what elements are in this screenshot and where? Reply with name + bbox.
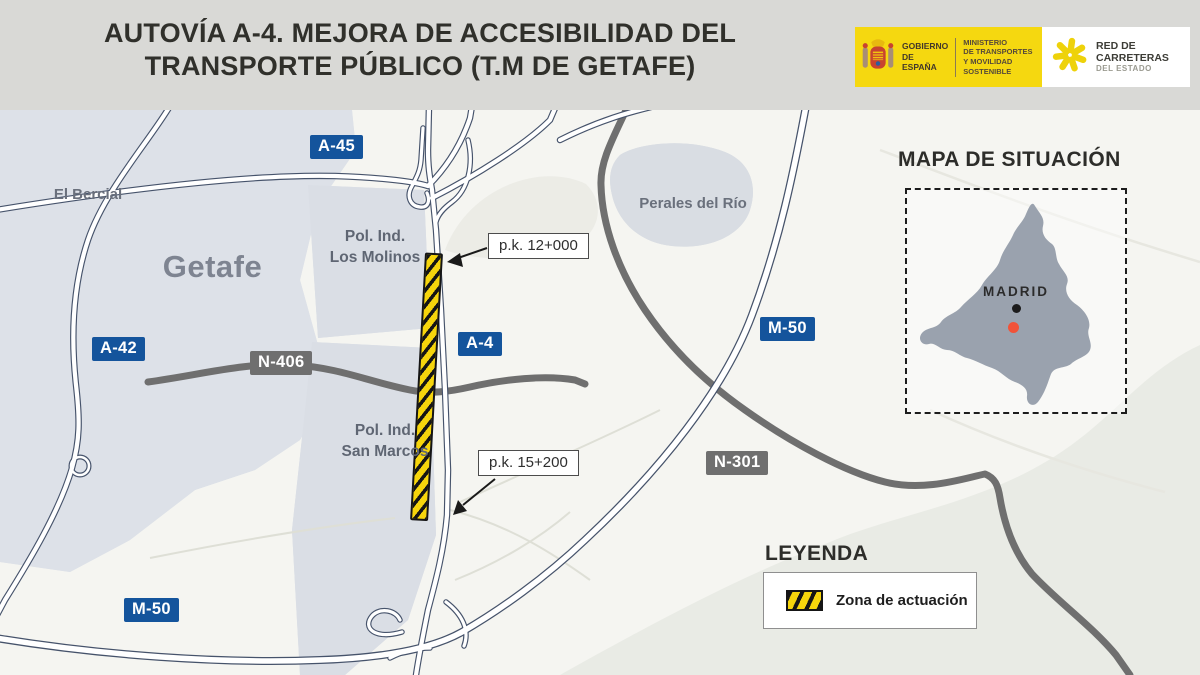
government-logo-text: GOBIERNO DE ESPAÑA bbox=[902, 41, 948, 73]
san-marcos-line2: San Marcos bbox=[325, 442, 445, 463]
page-title-line2: TRANSPORTE PÚBLICO (T.M DE GETAFE) bbox=[60, 50, 780, 83]
network-line3: DEL ESTADO bbox=[1096, 64, 1169, 73]
road-network-logo: RED DE CARRETERAS DEL ESTADO bbox=[1042, 27, 1190, 87]
road-badge-a42: A-42 bbox=[92, 337, 145, 361]
road-network-logo-text: RED DE CARRETERAS DEL ESTADO bbox=[1096, 41, 1169, 73]
infographic-page: AUTOVÍA A-4. MEJORA DE ACCESIBILIDAD DEL… bbox=[0, 0, 1200, 675]
network-line2: CARRETERAS bbox=[1096, 53, 1169, 65]
san-marcos-line1: Pol. Ind. bbox=[325, 421, 445, 442]
los-molinos-line2: Los Molinos bbox=[315, 248, 435, 269]
network-line1: RED DE bbox=[1096, 41, 1169, 53]
madrid-city-label: MADRID bbox=[907, 284, 1125, 299]
los-molinos-line1: Pol. Ind. bbox=[315, 227, 435, 248]
legend-item-label: Zona de actuación bbox=[836, 592, 968, 609]
gov-line2: DE ESPAÑA bbox=[902, 52, 948, 73]
government-logo: GOBIERNO DE ESPAÑA MINISTERIO DE TRANSPO… bbox=[855, 27, 1042, 87]
gov-line1: GOBIERNO bbox=[902, 41, 948, 52]
spain-coat-of-arms-icon bbox=[861, 35, 895, 80]
place-label-perales: Perales del Río bbox=[628, 194, 758, 214]
madrid-region-shape bbox=[907, 190, 1124, 411]
yellow-star-icon bbox=[1050, 35, 1090, 80]
callout-pk-15200: p.k. 15+200 bbox=[478, 450, 579, 476]
page-title: AUTOVÍA A-4. MEJORA DE ACCESIBILIDAD DEL… bbox=[60, 17, 780, 83]
ministry-line2: DE TRANSPORTES bbox=[963, 47, 1036, 57]
situation-map-title: MAPA DE SITUACIÓN bbox=[898, 148, 1158, 172]
legend-title: LEYENDA bbox=[765, 542, 868, 566]
road-badge-a45: A-45 bbox=[310, 135, 363, 159]
ministry-logo-text: MINISTERIO DE TRANSPORTES Y MOVILIDAD SO… bbox=[955, 38, 1036, 77]
project-map: A-45 A-42 A-4 M-50 M-50 N-406 N-301 El B… bbox=[0, 110, 1200, 675]
road-badge-a4: A-4 bbox=[458, 332, 502, 356]
legend-box: Zona de actuación bbox=[763, 572, 977, 629]
road-badge-n406: N-406 bbox=[250, 351, 312, 375]
work-zone-swatch-icon bbox=[786, 590, 823, 611]
place-label-san-marcos: Pol. Ind. San Marcos bbox=[325, 421, 445, 463]
situation-map-inset: MADRID bbox=[905, 188, 1127, 414]
madrid-city-dot bbox=[1012, 304, 1021, 313]
place-label-los-molinos: Pol. Ind. Los Molinos bbox=[315, 227, 435, 269]
page-title-line1: AUTOVÍA A-4. MEJORA DE ACCESIBILIDAD DEL bbox=[60, 17, 780, 50]
road-badge-n301: N-301 bbox=[706, 451, 768, 475]
place-label-el-bercial: El Bercial bbox=[38, 185, 138, 205]
header-band: AUTOVÍA A-4. MEJORA DE ACCESIBILIDAD DEL… bbox=[0, 0, 1200, 110]
place-label-getafe: Getafe bbox=[150, 246, 275, 288]
callout-pk-12000: p.k. 12+000 bbox=[488, 233, 589, 259]
ministry-line1: MINISTERIO bbox=[963, 38, 1036, 48]
road-badge-m50-east: M-50 bbox=[760, 317, 815, 341]
project-location-dot bbox=[1008, 322, 1019, 333]
road-badge-m50-south: M-50 bbox=[124, 598, 179, 622]
ministry-line3: Y MOVILIDAD SOSTENIBLE bbox=[963, 57, 1036, 77]
